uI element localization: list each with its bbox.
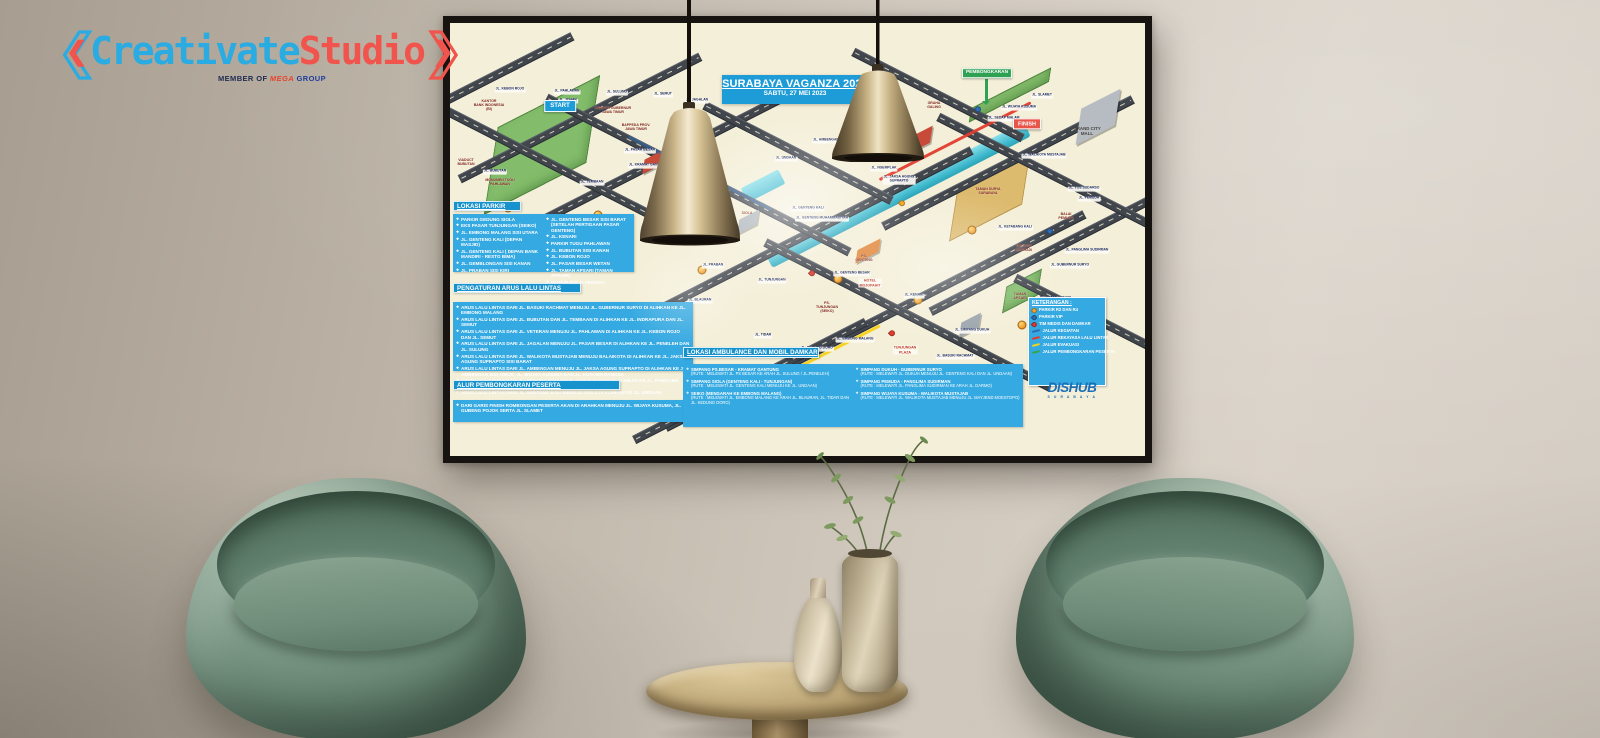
alur-item: DARI GARIS FINISH ROMBONGAN PESERTA AKAN… [456,403,690,414]
map-label: JL. KETABANG KALI [997,226,1033,231]
parkir-item: JL. KEBON ROJO [546,254,631,260]
vase-neck [810,578,826,598]
legend-symbol-icon [1032,329,1040,333]
map-label: PS. TUNJUNGAN (SEIKO) [816,301,838,313]
legend-label: JALUR PEMBONGKARAN PESERTA [1043,350,1116,354]
map-label: HOTEL MOJOPAHIT [858,278,881,287]
ambulance-item: SIMPANG DUKUH - GUBERNUR SURYO(RUTE : ME… [856,367,1021,377]
parkir-item: PARKIR GEDUNG SIOLA [456,217,541,223]
map-label: JL. BASUKI RACHMAT [936,355,975,360]
map-label: BALAI PEMUDA [1058,212,1073,220]
map-label: JL. SULUNG [606,91,628,96]
legend-symbol-icon [1031,307,1037,313]
map-label: GRAHA GALING [927,101,941,109]
legend-label: JALUR REKAYASA LALU LINTAS [1043,336,1109,340]
map-label: MONUMEN TUGU PAHLAWAN [485,178,514,186]
map-label: JL. EMBONG MALANG [836,338,875,343]
ambulance-item: SIMPANG PS.BESAR - KRAMAT GANTUNG(RUTE :… [686,367,851,377]
map-label: JL. GUBERNUR SURYO [1050,264,1090,269]
map-label: JL. PRABAN [702,264,724,269]
dishub-logo: DISHUB S U R A B A Y A [1038,381,1106,399]
route-note: (RUTE : MELEWATI JL. PS BESAR KE ARAH JL… [691,372,851,377]
legend-label: PARKIR VIP [1039,315,1063,319]
section-title-lokasi-parkir: LOKASI PARKIR [453,201,521,211]
map-label: JL. JAKSA AGUNG SUPRAPTO [883,176,916,185]
arus-item: ARUS LALU LINTAS DARI JL. BUBUTAN DAN JL… [456,317,690,328]
parkir-item: JL. TAMAN APSARI (TAMAN APSARI) [546,268,631,279]
brand-tagline: MEMBER OF MEGA GROUP [218,74,326,83]
map-label: JL. UNDAAN [775,157,798,162]
legend-label: JALUR EVAKUASI [1043,343,1079,347]
map-label: JL. KEBON ROJO [495,88,526,93]
ambulance-item: SEIKO (MENGARAH KE EMBONG MALANG)(RUTE :… [686,391,851,406]
pendant-lamp-left [640,0,740,246]
vase-opening [848,549,893,558]
route-note: (RUTE : MELEWATI JL. EMBONG MALANG KE AR… [691,396,851,406]
parkir-list-1: PARKIR GEDUNG SIOLAEKS PASAR TUNJUNGAN (… [456,217,541,270]
parkir-item: JL. GENTENG BESAR SISI BARAT (SETELAH PE… [546,217,631,234]
map-label: VIADUCT BUBUTAN [457,158,474,166]
legend-symbol-icon [1032,336,1040,340]
map-label: TUNJUNGAN PLAZA [893,345,918,354]
legend-symbol-icon [1032,350,1040,354]
section-body-alur: DARI GARIS FINISH ROMBONGAN PESERTA AKAN… [453,400,693,422]
brand-watermark: ❮ ❮ Creativate Studio ❯ ❯ MEMBER OF MEGA… [58,26,456,76]
legend-row: JALUR PEMBONGKARAN PESERTA [1032,350,1102,354]
map-label: JL. BUBUTAN [483,170,507,175]
keterangan-list: PARKIR R2 DAN R4 PARKIR VIP TIM MEDIS DA… [1032,308,1102,354]
route-note: (RUTE : MELEWATI JL. DUKUH MENUJU JL. GE… [861,372,1021,377]
map-label: JL. YOS SUDARSO [1068,187,1101,192]
pendant-lamp-right [832,0,924,162]
legend-keterangan: KETERANGAN : PARKIR R2 DAN R4 PARKIR VIP… [1028,297,1106,386]
vase-tall [842,552,898,692]
map-label: JL. TIDAR [754,334,772,339]
route-note: (RUTE : MELEWATI JL. WALIKOTA MUSTAJAB M… [861,396,1021,401]
map-label: GRAND CITY MALL [1073,126,1100,136]
mockup-scene: ❮ ❮ Creativate Studio ❯ ❯ MEMBER OF MEGA… [0,0,1600,738]
map-label: SIOLA [742,211,753,215]
map-label: FINISH [1013,118,1041,129]
map-label: PS. GENTENG [855,254,872,262]
map-label: JL. TEMBAAN [580,181,605,186]
map-label: JL. GENTENG MUHAMMADIYAH [795,217,849,222]
parkir-item: JL. GENTENG KALI ( DEPAN BANK MANDIRI - … [456,249,541,260]
map-label: JL. NGEMPLAK [870,167,897,172]
parkir-item: JL. PRABAN SISI KIRI [456,268,541,274]
legend-label: JALUR KEGIATAN [1043,329,1079,333]
legend-title: KETERANGAN : [1032,300,1102,306]
map-label: JL. WALIKOTA MUSTAJAB [1021,154,1066,159]
parkir-list-2: JL. GENTENG BESAR SISI BARAT (SETELAH PE… [546,217,631,270]
legend-row: PARKIR R2 DAN R4 [1032,308,1102,313]
parkir-item: JL. KENARI [546,234,631,240]
map-label: TAMAN APSARI [1013,292,1026,300]
map-label: KANTOR GUBERNUR JAWA TIMUR [595,106,631,114]
ambulance-item: SIMPANG SIOLA (GENTENG KALI - TUNJUNGAN)… [686,379,851,389]
map-label: GEDUNG GRAHADI [1016,244,1032,252]
section-title-alur: ALUR PEMBONGKARAN PESERTA [453,380,620,390]
parkir-item: JL. BUBUTAN SISI KANAN [546,248,631,254]
legend-label: TIM MEDIS DAN DAMKAR [1039,322,1091,326]
map-label: JL. PAHLAWAN [554,90,581,95]
legend-row: TIM MEDIS DAN DAMKAR [1032,322,1102,327]
map-label: START [544,100,576,112]
map-label: PEMBONGKARAN [962,68,1012,78]
map-label: JL. GENTENG BESAR [833,272,870,277]
armchair-left [186,478,526,738]
section-title-ambulance: LOKASI AMBULANCE DAN MOBIL DAMKAR [683,347,819,358]
lamp-shade-icon [640,0,740,246]
route-note: (RUTE : MELEWATI JL. GENTENG KALI MENUJU… [691,384,851,389]
legend-row: PARKIR VIP [1032,315,1102,320]
armchair-right [1016,478,1354,738]
legend-symbol-icon [1032,343,1040,347]
parkir-item: JL. GENTENG KALI (DEPAN MASJID) [456,237,541,248]
map-label: JL. SLAMET [1031,94,1053,99]
map-label: JL. PANGLIMA SUDIRMAN [1065,249,1110,254]
section-body-lokasi-parkir: PARKIR GEDUNG SIOLAEKS PASAR TUNJUNGAN (… [453,214,634,272]
arus-item: ARUS LALU LINTAS DARI JL. JAGALAN MENUJU… [456,341,690,352]
vase-small [794,594,842,692]
section-body-arus: ARUS LALU LINTAS DARI JL. BASUKI RACHMAT… [453,302,693,371]
map-label: JL. TUNJUNGAN [757,279,786,284]
map-label: KANTOR BANK INDONESIA (BI) [474,99,505,111]
map-label: JL. KENARI [904,294,925,299]
parkir-item: JL. GEMBLONGAN SISI KANAN [456,261,541,267]
parkir-item: JL. PASAR BESAR WETAN [546,261,631,267]
alur-list: DARI GARIS FINISH ROMBONGAN PESERTA AKAN… [456,403,690,414]
lamp-shade-icon [832,0,924,162]
arus-item: ARUS LALU LINTAS DARI JL. WALIKOTA MUSTA… [456,354,690,365]
map-label: JL. WIJAYA KUSUMA [1001,106,1037,111]
legend-symbol-icon [1031,321,1037,327]
map-poster: JL. KEBON ROJOJL. PAHLAWANJL. JOHARKANTO… [450,23,1145,456]
arus-item: ARUS LALU LINTAS DARI JL. AMBENGAN MENUJ… [456,366,690,377]
arus-item: ARUS LALU LINTAS DARI JL. BASUKI RACHMAT… [456,305,690,316]
brand-name-secondary: Studio [299,26,424,76]
legend-label: PARKIR R2 DAN R4 [1039,308,1078,312]
parkir-item: EKS PASAR TUNJUNGAN (SEIKO) [456,223,541,229]
bracket-right-icon: ❯ ❯ [424,26,456,76]
ambulance-item: SIMPANG PEMUDA - PANGLIMA SUDIRMAN(RUTE … [856,379,1021,389]
poster-frame: JL. KEBON ROJOJL. PAHLAWANJL. JOHARKANTO… [443,16,1152,463]
legend-symbol-icon [1031,314,1037,320]
section-title-arus: PENGATURAN ARUS LALU LINTAS [453,283,581,293]
map-label: JL. GENTENG KALI [791,207,824,212]
bracket-left-icon: ❮ ❮ [58,26,90,76]
map-label: TAMAN SURYA SURABAYA [975,187,1000,195]
brand-name-primary: Creativate [90,26,299,76]
parkir-item: JL. EMBONG MALANG SISI UTARA [456,230,541,236]
legend-row: JALUR EVAKUASI [1032,343,1102,347]
dishub-city: S U R A B A Y A [1038,395,1106,399]
arus-item: ARUS LALU LINTAS DARI JL. GENTENG KALI M… [456,390,690,396]
map-label: JL. PEMUDA [1078,197,1101,202]
legend-row: JALUR REKAYASA LALU LINTAS [1032,336,1102,340]
arus-item: ARUS LALU LINTAS DARI JL. VETERAN MENUJU… [456,329,690,340]
map-label: JL. SIMPANG DUKUH [954,329,991,334]
dishub-name: DISHUB [1038,381,1106,395]
route-note: (RUTE : MELEWATI JL. PANGLIMA SUDIRMAN K… [861,384,1021,389]
parkir-item: PARKIR TUGU PAHLAWAN [546,241,631,247]
legend-row: JALUR KEGIATAN [1032,329,1102,333]
ambulance-item: SIMPANG WIJAYA KUSUMA - WALIKOTA MUSTAJA… [856,391,1021,401]
